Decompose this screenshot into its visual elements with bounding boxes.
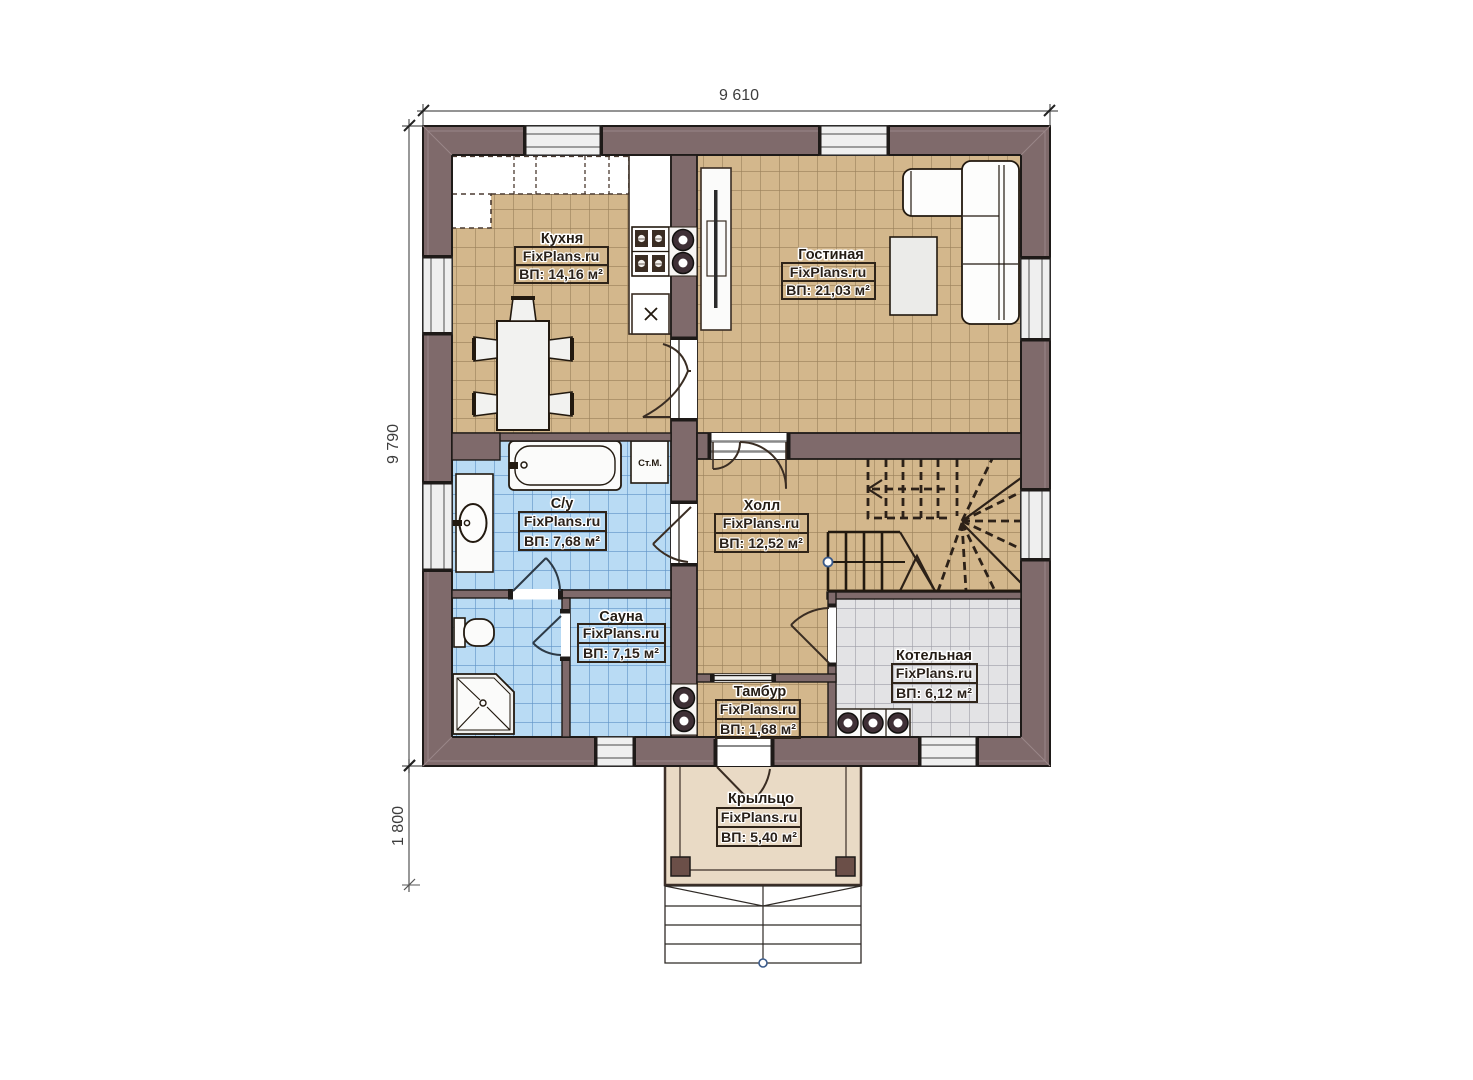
- svg-text:Кухня: Кухня: [541, 231, 583, 247]
- svg-text:ВП: 12,52 м²: ВП: 12,52 м²: [719, 536, 803, 552]
- svg-text:FixPlans.ru: FixPlans.ru: [583, 626, 659, 642]
- svg-text:ВП: 21,03 м²: ВП: 21,03 м²: [786, 283, 870, 299]
- svg-text:Крыльцо: Крыльцо: [728, 791, 794, 807]
- svg-text:ВП: 6,12 м²: ВП: 6,12 м²: [896, 686, 972, 702]
- svg-text:9 610: 9 610: [719, 87, 759, 104]
- svg-text:ВП: 1,68 м²: ВП: 1,68 м²: [720, 722, 796, 738]
- svg-text:ВП: 14,16 м²: ВП: 14,16 м²: [519, 267, 603, 283]
- svg-text:ВП: 5,40 м²: ВП: 5,40 м²: [721, 830, 797, 846]
- svg-text:Сауна: Сауна: [599, 609, 644, 625]
- svg-text:Ст.М.: Ст.М.: [638, 458, 662, 469]
- svg-text:FixPlans.ru: FixPlans.ru: [721, 810, 797, 826]
- svg-text:FixPlans.ru: FixPlans.ru: [524, 514, 600, 530]
- svg-text:С/у: С/у: [551, 496, 574, 512]
- svg-text:9 790: 9 790: [385, 424, 402, 464]
- svg-text:FixPlans.ru: FixPlans.ru: [896, 666, 972, 682]
- svg-text:1 800: 1 800: [390, 806, 407, 846]
- svg-text:FixPlans.ru: FixPlans.ru: [790, 265, 866, 281]
- svg-text:ВП: 7,68 м²: ВП: 7,68 м²: [524, 534, 600, 550]
- svg-text:Тамбур: Тамбур: [734, 684, 787, 700]
- svg-text:Гостиная: Гостиная: [798, 247, 864, 263]
- svg-text:Холл: Холл: [744, 498, 780, 514]
- svg-text:FixPlans.ru: FixPlans.ru: [720, 702, 796, 718]
- svg-text:FixPlans.ru: FixPlans.ru: [523, 249, 599, 265]
- svg-text:Котельная: Котельная: [896, 648, 972, 664]
- svg-text:FixPlans.ru: FixPlans.ru: [723, 516, 799, 532]
- svg-text:ВП: 7,15 м²: ВП: 7,15 м²: [583, 646, 659, 662]
